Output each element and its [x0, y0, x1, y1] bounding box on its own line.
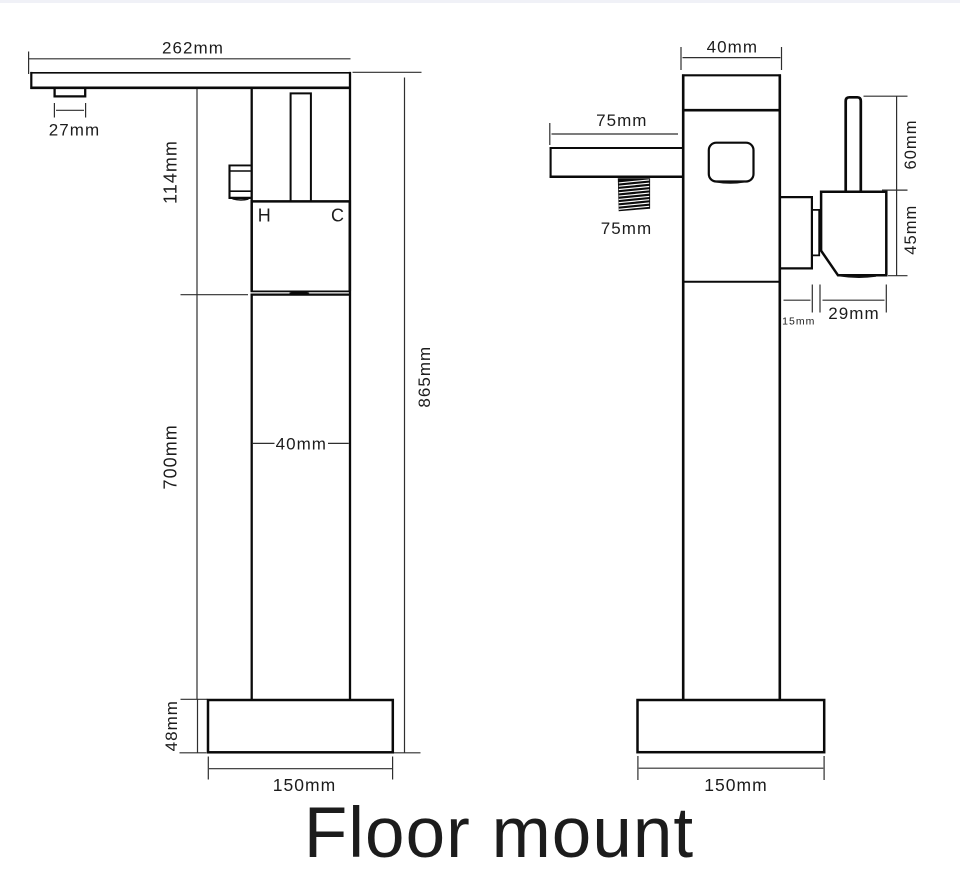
svg-text:150mm: 150mm	[273, 775, 337, 795]
svg-text:75mm: 75mm	[601, 219, 652, 238]
svg-text:865mm: 865mm	[415, 346, 434, 408]
svg-text:40mm: 40mm	[707, 38, 758, 57]
svg-text:60mm: 60mm	[902, 119, 920, 169]
svg-text:15mm: 15mm	[782, 316, 815, 328]
svg-text:48mm: 48mm	[162, 700, 181, 751]
svg-text:27mm: 27mm	[49, 121, 100, 140]
svg-text:75mm: 75mm	[596, 111, 647, 130]
svg-text:29mm: 29mm	[828, 304, 879, 323]
svg-text:40mm: 40mm	[276, 434, 327, 453]
svg-text:H: H	[258, 205, 272, 225]
svg-text:45mm: 45mm	[902, 205, 920, 255]
svg-text:C: C	[331, 205, 345, 225]
svg-text:150mm: 150mm	[704, 775, 768, 795]
svg-text:114mm: 114mm	[160, 140, 180, 204]
svg-text:262mm: 262mm	[162, 39, 224, 58]
svg-text:Floor mount: Floor mount	[304, 794, 694, 873]
svg-text:700mm: 700mm	[160, 424, 180, 489]
